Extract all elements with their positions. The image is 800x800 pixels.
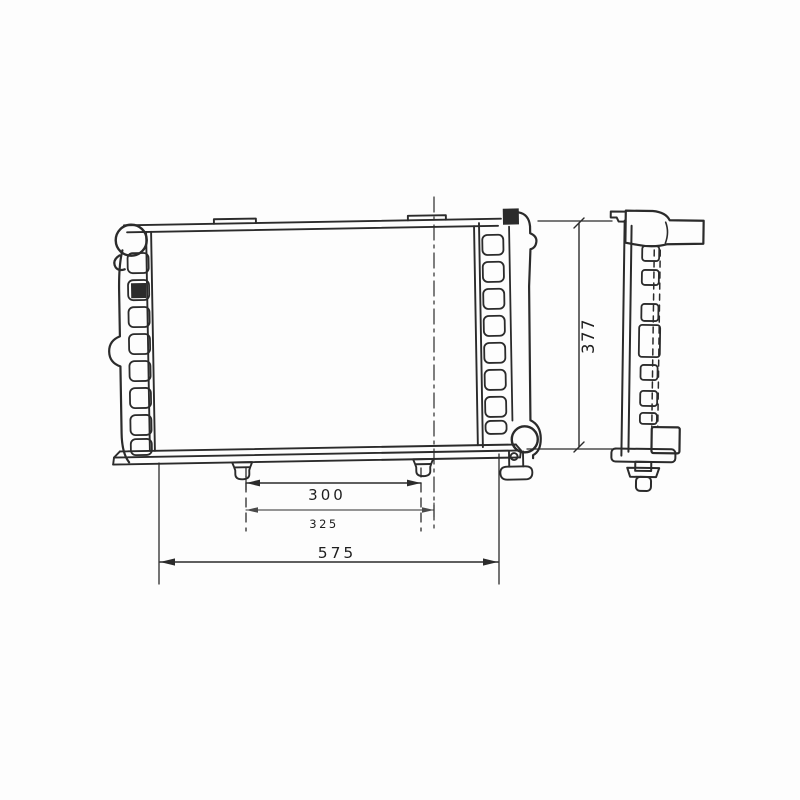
side-tank-blocks — [638, 246, 661, 424]
filler-neck — [115, 224, 147, 256]
left-tank — [107, 224, 152, 462]
radiator-front-view — [107, 208, 542, 486]
left-tank-plug-black — [131, 283, 146, 298]
mounting-pin-left — [232, 462, 252, 479]
inlet-pipe — [625, 211, 703, 247]
extension-lines — [159, 221, 616, 584]
radiator-drawing-canvas: 377 300 325 575 — [0, 0, 800, 800]
dimension-label-325: 325 — [309, 517, 338, 531]
technical-drawing-page: 377 300 325 575 — [0, 0, 800, 800]
right-tank — [482, 208, 542, 480]
dimension-label-377: 377 — [579, 318, 598, 354]
dimension-label-300: 300 — [308, 486, 346, 504]
inlet-pipe-junction — [665, 222, 667, 243]
bleed-plug-black — [503, 208, 519, 224]
bottom-bracket-bar — [113, 444, 521, 464]
dimension-300: 300 — [246, 476, 421, 504]
mounting-pin-right — [413, 459, 433, 476]
dimension-annotations: 377 300 325 575 — [159, 197, 616, 584]
core-outline — [124, 214, 505, 453]
drain-fitting — [500, 451, 532, 480]
dimension-377: 377 — [574, 218, 598, 452]
dimension-575: 575 — [160, 544, 498, 566]
right-tank-ribs — [482, 235, 506, 434]
dimension-325: 325 — [246, 503, 434, 531]
dimension-label-575: 575 — [318, 544, 357, 562]
radiator-side-view — [607, 210, 704, 491]
